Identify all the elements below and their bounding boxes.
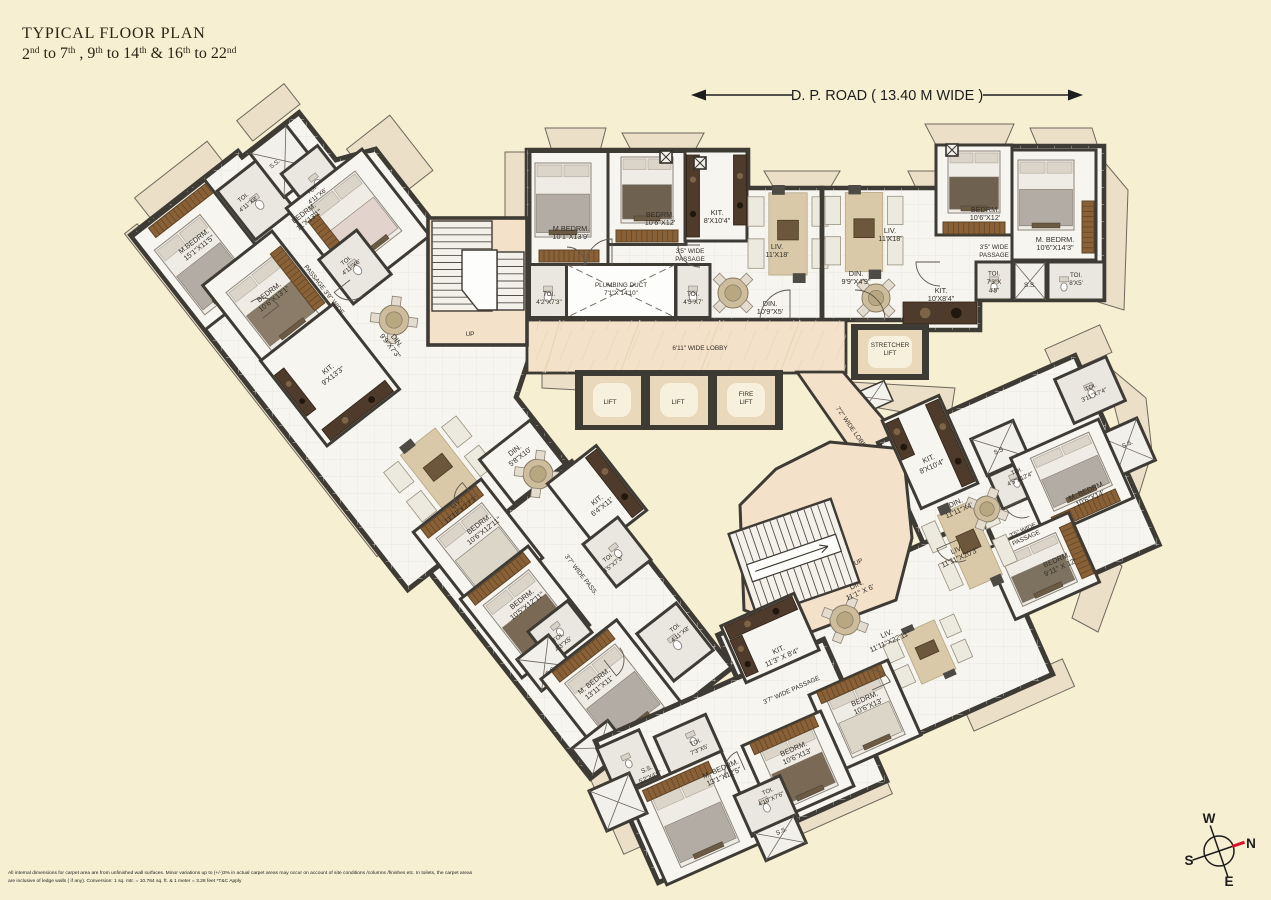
svg-text:TOI.: TOI. <box>687 291 700 298</box>
svg-text:FIRE: FIRE <box>739 391 754 398</box>
svg-text:PLUMBING DUCT: PLUMBING DUCT <box>595 282 647 289</box>
svg-text:7'3"X: 7'3"X <box>987 279 1002 286</box>
svg-text:4'5": 4'5" <box>989 287 999 294</box>
svg-text:2nd to 7th , 9th to 14th & 16t: 2nd to 7th , 9th to 14th & 16th to 22nd <box>22 45 237 63</box>
svg-text:PASSAGE: PASSAGE <box>675 256 705 263</box>
svg-text:TOI.: TOI. <box>988 271 1000 278</box>
svg-text:S: S <box>1184 853 1193 868</box>
svg-text:9'9"X4'9": 9'9"X4'9" <box>841 277 870 286</box>
svg-text:TOI.: TOI. <box>1070 272 1082 279</box>
svg-text:10'6"X14'3": 10'6"X14'3" <box>1036 243 1074 252</box>
svg-text:LIFT: LIFT <box>739 399 752 406</box>
svg-text:LIFT: LIFT <box>884 350 897 357</box>
svg-text:LIFT: LIFT <box>671 399 684 406</box>
svg-text:3'5" WIDE: 3'5" WIDE <box>980 244 1009 251</box>
svg-text:10'6"X12': 10'6"X12' <box>970 213 1001 222</box>
svg-text:10'1"X13'9": 10'1"X13'9" <box>552 232 590 241</box>
svg-text:7'1"X 14'10": 7'1"X 14'10" <box>604 290 638 297</box>
svg-text:11'X18': 11'X18' <box>878 234 902 243</box>
svg-text:TOI.: TOI. <box>543 291 556 298</box>
svg-text:8'X5': 8'X5' <box>1069 280 1083 287</box>
svg-text:4'5"X7': 4'5"X7' <box>683 299 703 306</box>
svg-text:10'X8'4": 10'X8'4" <box>928 294 955 303</box>
svg-text:STRETCHER: STRETCHER <box>871 342 910 349</box>
svg-text:N: N <box>1246 836 1256 851</box>
svg-text:11'X18': 11'X18' <box>765 250 789 259</box>
svg-text:UP: UP <box>466 331 475 338</box>
svg-text:E: E <box>1224 874 1233 889</box>
svg-text:4'2"X7'3": 4'2"X7'3" <box>536 299 561 306</box>
svg-text:W: W <box>1203 811 1216 826</box>
svg-text:D. P. ROAD ( 13.40 M WIDE ): D. P. ROAD ( 13.40 M WIDE ) <box>791 88 983 104</box>
svg-text:PASSAGE: PASSAGE <box>979 252 1009 259</box>
svg-text:10'6"X12': 10'6"X12' <box>645 218 676 227</box>
svg-text:8'X10'4": 8'X10'4" <box>704 216 731 225</box>
svg-text:LIFT: LIFT <box>603 399 616 406</box>
svg-text:are inclusive of ledge walls (: are inclusive of ledge walls ( if any). … <box>8 878 242 884</box>
svg-text:All internal dimensions for ca: All internal dimensions for carpet area … <box>8 870 473 876</box>
svg-text:TYPICAL FLOOR PLAN: TYPICAL FLOOR PLAN <box>22 25 206 42</box>
svg-text:6'11" WIDE LOBBY: 6'11" WIDE LOBBY <box>672 345 728 352</box>
svg-text:S.S.: S.S. <box>1024 282 1036 289</box>
